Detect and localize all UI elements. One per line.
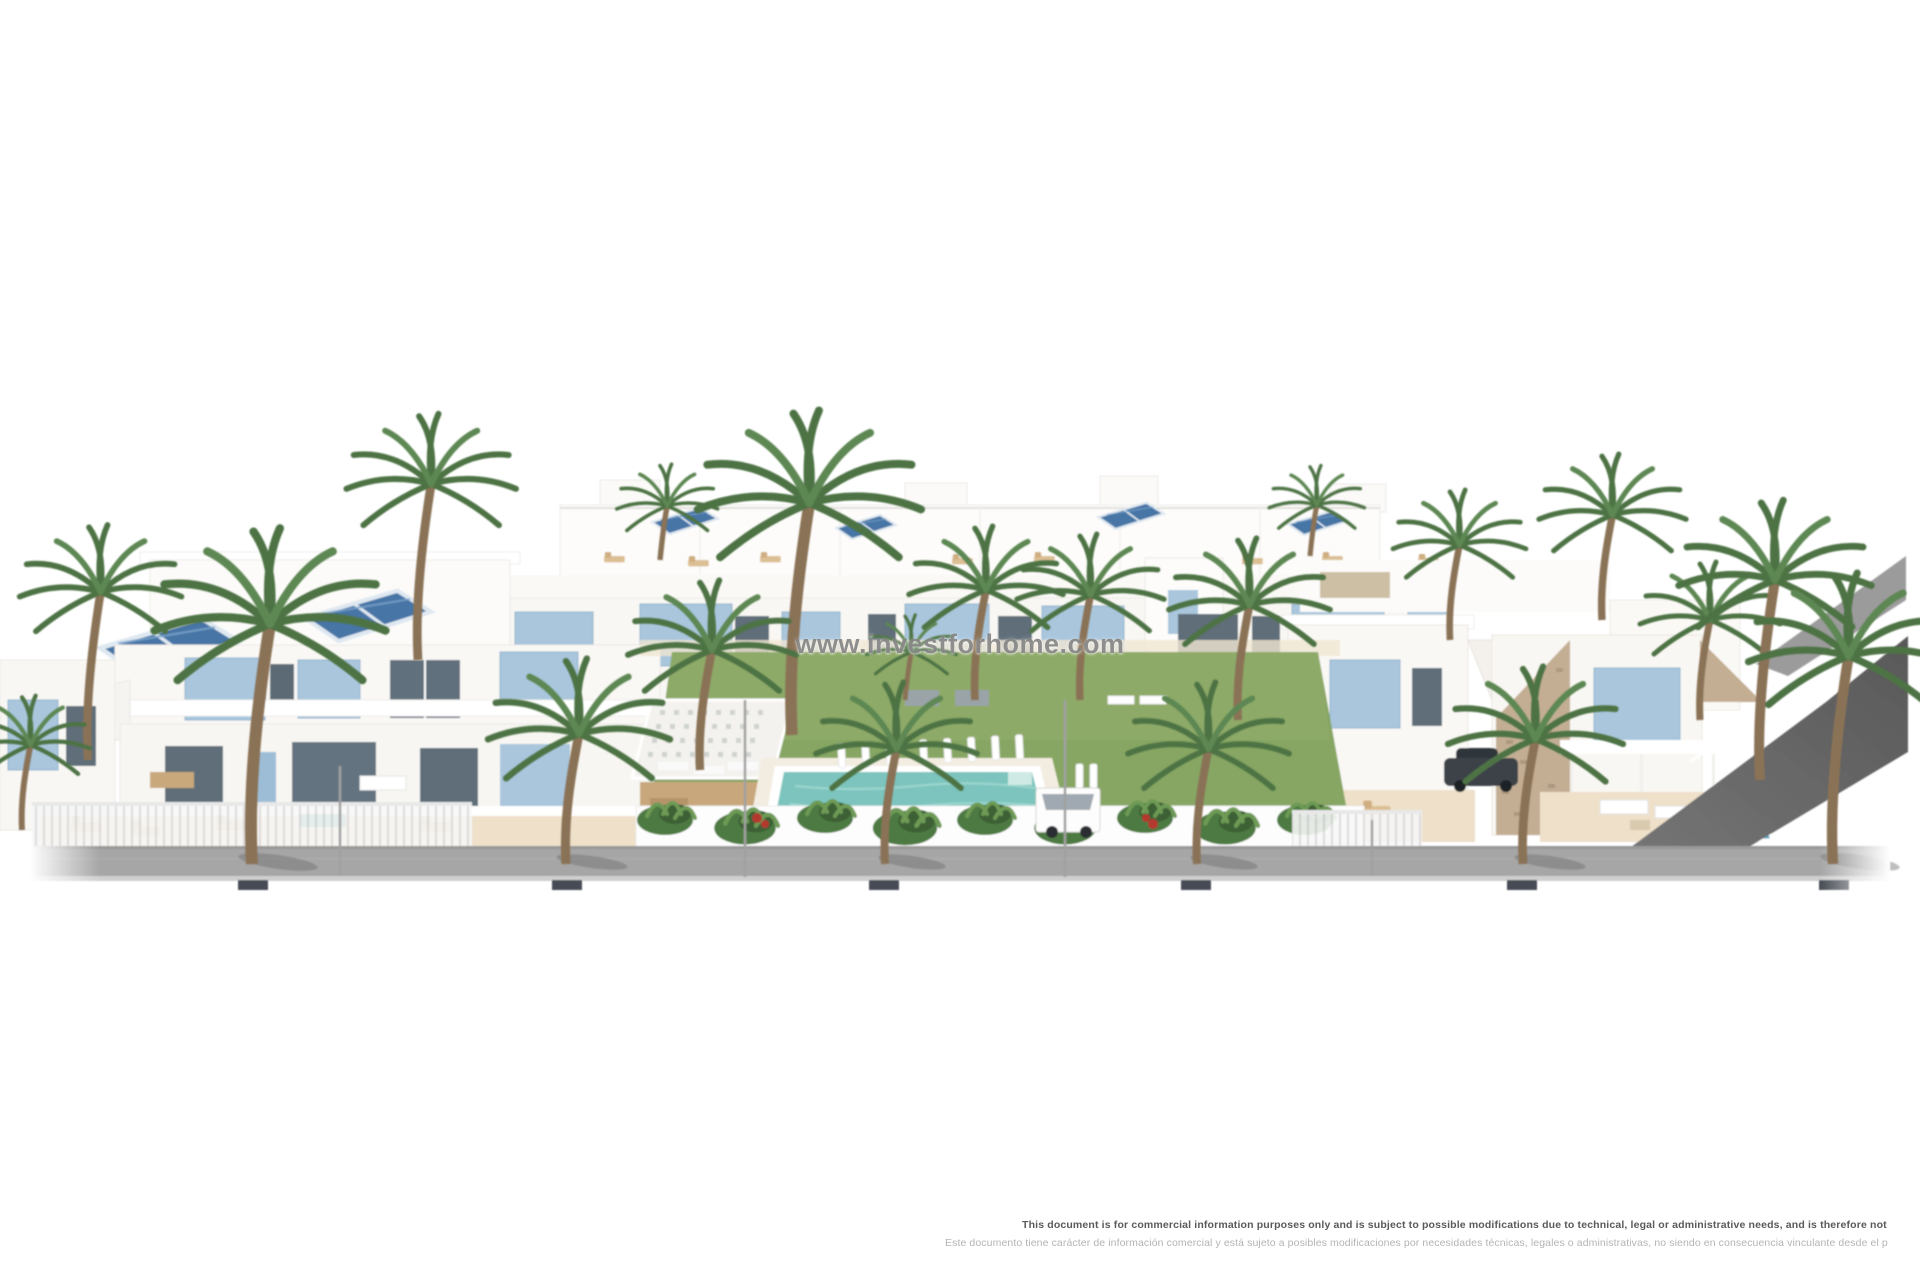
disclaimer-line-es: Este documento tiene carácter de informa… (945, 1237, 1888, 1249)
roof-pergola (1320, 572, 1390, 598)
disclaimer-line-en: This document is for commercial informat… (1022, 1219, 1887, 1231)
watermark: www.investforhome.com (795, 629, 1124, 660)
drain-covers (238, 880, 1849, 890)
page-canvas: www.investforhome.com This document is f… (0, 0, 1920, 1280)
white-van (1036, 788, 1100, 838)
curb (30, 876, 1890, 881)
